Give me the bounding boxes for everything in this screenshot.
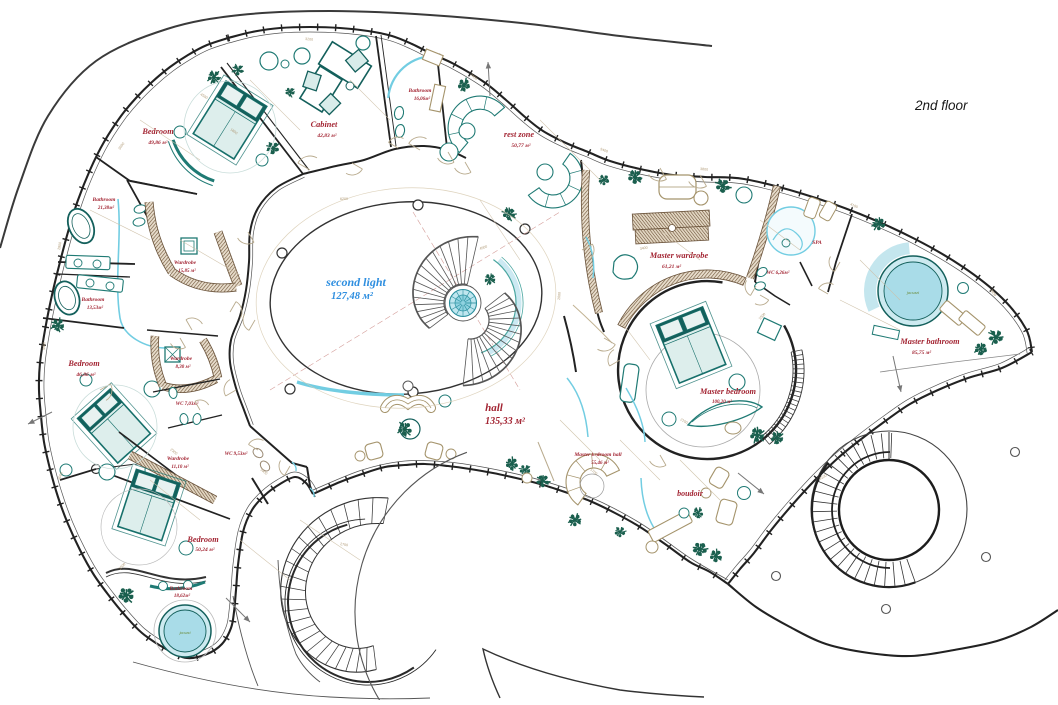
svg-text:49,86 м²: 49,86 м² [147,140,168,146]
svg-text:second light: second light [325,275,386,289]
svg-text:2nd floor: 2nd floor [914,98,968,113]
svg-text:Master bedroom hall: Master bedroom hall [573,452,622,458]
svg-text:Bathroom: Bathroom [408,88,433,94]
svg-text:50,24 м²: 50,24 м² [195,547,215,553]
svg-text:hall: hall [485,402,504,414]
svg-text:127,48 м²: 127,48 м² [331,291,374,302]
svg-text:Wardrobe: Wardrobe [170,356,193,362]
svg-text:WC 6,26м²: WC 6,26м² [767,270,790,276]
svg-text:13,53м²: 13,53м² [87,305,104,311]
svg-text:85,75 м²: 85,75 м² [912,350,932,356]
svg-text:8,30 м²: 8,30 м² [176,364,191,370]
svg-text:2000: 2000 [557,292,562,300]
svg-text:Bathroom: Bathroom [169,586,194,592]
svg-text:Master wardrobe: Master wardrobe [649,251,709,260]
svg-text:jacuzzi: jacuzzi [906,290,920,295]
svg-text:Bedroom: Bedroom [67,359,100,368]
svg-text:4400: 4400 [42,342,46,350]
svg-text:15,85 м²: 15,85 м² [178,268,196,274]
svg-text:Cabinet: Cabinet [311,120,338,129]
svg-text:Bathroom: Bathroom [81,297,106,303]
svg-text:rest zone: rest zone [504,130,535,139]
svg-text:jacuzzi: jacuzzi [178,630,190,635]
svg-text:3800: 3800 [700,167,708,172]
svg-text:Bathroom: Bathroom [92,197,117,203]
svg-text:3200: 3200 [305,37,313,42]
svg-text:61,21 м²: 61,21 м² [662,264,682,270]
svg-text:Master bedroom: Master bedroom [699,387,757,396]
svg-text:Wardrobe: Wardrobe [174,260,197,266]
svg-text:135,33 м²: 135,33 м² [485,416,526,427]
svg-text:6200: 6200 [340,197,348,201]
svg-text:16,06м²: 16,06м² [414,96,431,102]
svg-text:SPA: SPA [812,240,822,246]
svg-text:WC 9,53м²: WC 9,53м² [225,451,248,457]
svg-text:46,86 м²: 46,86 м² [75,372,96,378]
svg-text:21,38м²: 21,38м² [97,205,115,211]
svg-text:55,46 м²: 55,46 м² [591,460,609,466]
svg-text:boudoir: boudoir [677,489,704,498]
svg-text:100,20 м²: 100,20 м² [712,399,732,405]
svg-text:Master bathroom: Master bathroom [899,337,960,346]
svg-text:18,62м²: 18,62м² [174,593,191,599]
svg-text:11,10 м²: 11,10 м² [171,464,189,470]
svg-text:50,77 м²: 50,77 м² [511,143,531,149]
svg-text:42,83 м²: 42,83 м² [316,133,337,139]
svg-text:Bedroom: Bedroom [186,535,219,544]
svg-text:Wardrobe: Wardrobe [167,456,190,462]
